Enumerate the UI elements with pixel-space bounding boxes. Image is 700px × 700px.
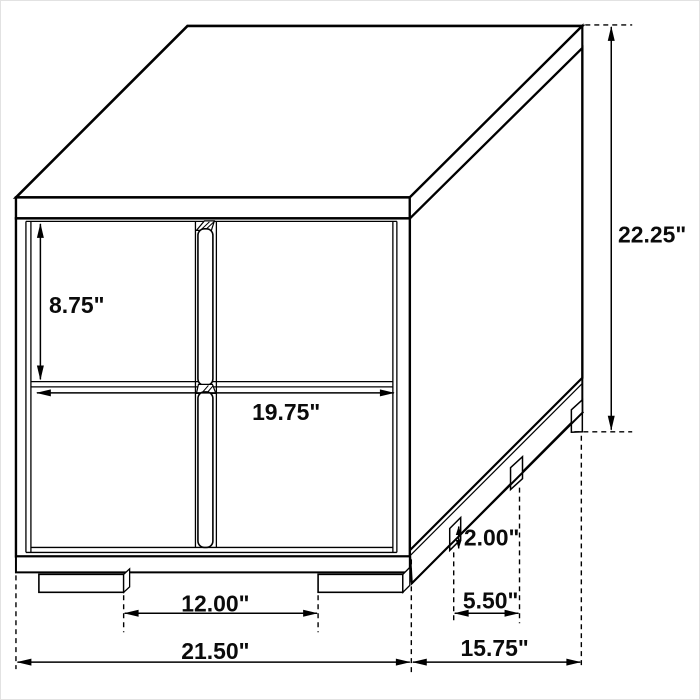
dim-label-overall-depth: 15.75" — [460, 635, 528, 661]
dim-label-drawer-front-height: 8.75" — [49, 292, 104, 318]
front-right-leg — [318, 574, 403, 592]
dim-label-side-leg-spacing: 5.50" — [463, 587, 518, 613]
furniture-dimension-diagram: 8.75" 19.75" 22.25" 2.00" 5.50" 12.00" 2… — [0, 0, 700, 700]
dim-label-leg-height: 2.00" — [464, 524, 519, 550]
top-drawer-handle — [198, 229, 213, 386]
dim-label-overall-width: 21.50" — [181, 638, 249, 664]
top-front-edge — [16, 197, 410, 218]
front-left-leg — [39, 574, 124, 592]
nightstand-line-drawing: 8.75" 19.75" 22.25" 2.00" 5.50" 12.00" 2… — [1, 1, 699, 699]
dim-label-overall-height: 22.25" — [618, 221, 686, 247]
dim-label-front-leg-spacing: 12.00" — [181, 590, 249, 616]
bottom-drawer-handle — [198, 392, 213, 548]
dim-label-drawer-opening-width: 19.75" — [252, 399, 320, 425]
front-base-rail — [16, 556, 410, 572]
